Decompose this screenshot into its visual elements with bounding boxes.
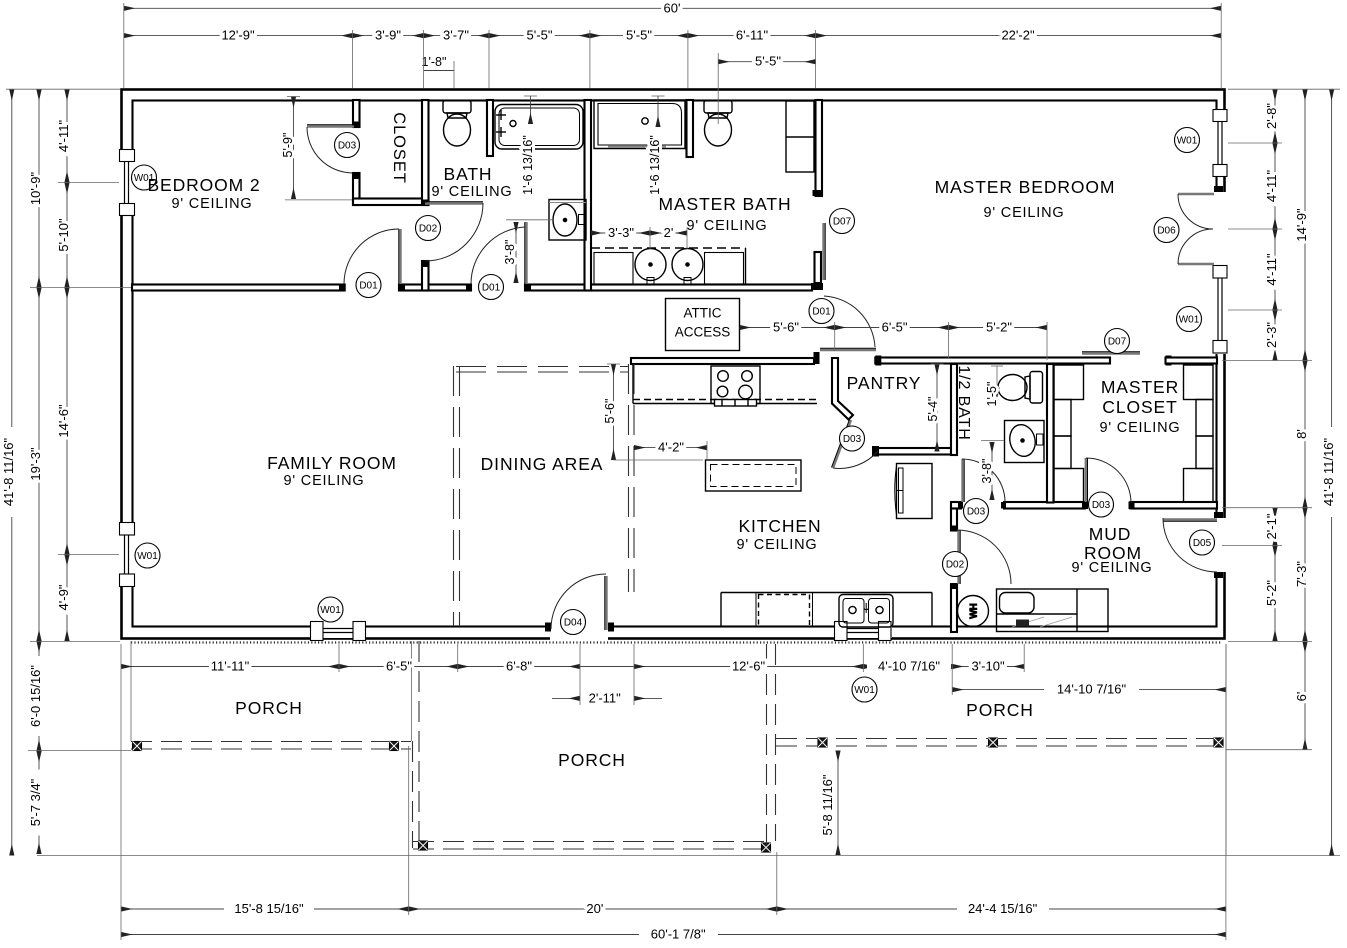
svg-text:20': 20' xyxy=(586,901,603,916)
svg-text:6'-11": 6'-11" xyxy=(736,28,769,43)
svg-text:1'-6 13/16": 1'-6 13/16" xyxy=(521,135,535,195)
svg-text:PANTRY: PANTRY xyxy=(847,373,922,393)
svg-text:2'-3": 2'-3" xyxy=(1264,322,1279,348)
svg-text:2'-11": 2'-11" xyxy=(589,690,622,705)
svg-text:W01: W01 xyxy=(320,605,341,616)
svg-text:4'-2": 4'-2" xyxy=(658,440,684,455)
svg-text:3'-8": 3'-8" xyxy=(503,240,517,265)
svg-text:CLOSET: CLOSET xyxy=(1102,397,1177,417)
svg-text:PORCH: PORCH xyxy=(235,698,303,718)
svg-text:DINING AREA: DINING AREA xyxy=(481,454,604,474)
svg-text:D06: D06 xyxy=(1157,226,1176,237)
svg-text:W01: W01 xyxy=(854,685,875,696)
svg-text:8': 8' xyxy=(1294,429,1309,439)
svg-text:14'-6": 14'-6" xyxy=(56,404,71,438)
svg-text:60'-1 7/8": 60'-1 7/8" xyxy=(651,927,706,942)
svg-text:9' CEILING: 9' CEILING xyxy=(172,196,253,212)
svg-text:PORCH: PORCH xyxy=(966,700,1034,720)
svg-text:W01: W01 xyxy=(137,551,158,562)
svg-text:14'-10 7/16": 14'-10 7/16" xyxy=(1057,682,1127,697)
svg-text:2'-1": 2'-1" xyxy=(1264,513,1279,539)
svg-text:4'-11": 4'-11" xyxy=(1264,253,1279,286)
svg-text:ATTIC: ATTIC xyxy=(684,306,722,321)
svg-text:14'-9": 14'-9" xyxy=(1294,208,1309,242)
svg-text:9' CEILING: 9' CEILING xyxy=(284,473,365,489)
svg-text:3'-7": 3'-7" xyxy=(443,28,469,43)
svg-text:D07: D07 xyxy=(1108,337,1127,348)
svg-text:19'-3": 19'-3" xyxy=(28,447,43,481)
svg-text:6'-0 15/16": 6'-0 15/16" xyxy=(28,665,43,727)
svg-text:5'-8 11/16": 5'-8 11/16" xyxy=(820,774,835,835)
svg-text:1/2 BATH: 1/2 BATH xyxy=(955,365,972,440)
svg-text:12'-6": 12'-6" xyxy=(732,659,766,674)
svg-text:1'-5": 1'-5" xyxy=(985,382,999,407)
svg-text:3'-10": 3'-10" xyxy=(971,659,1005,674)
svg-text:5'-9": 5'-9" xyxy=(281,133,295,158)
svg-text:22'-2": 22'-2" xyxy=(1001,28,1035,43)
svg-text:MASTER BATH: MASTER BATH xyxy=(658,194,791,214)
svg-text:KITCHEN: KITCHEN xyxy=(738,516,821,536)
svg-text:2': 2' xyxy=(664,225,674,240)
svg-text:2'-8": 2'-8" xyxy=(1264,103,1279,129)
svg-text:BATH: BATH xyxy=(444,164,493,184)
svg-text:3'-3": 3'-3" xyxy=(608,225,634,240)
svg-text:41'-8 11/16": 41'-8 11/16" xyxy=(1321,437,1336,506)
svg-text:D02: D02 xyxy=(419,224,438,235)
svg-text:11'-11": 11'-11" xyxy=(211,659,250,674)
svg-text:6'-8": 6'-8" xyxy=(506,659,532,674)
svg-text:W01: W01 xyxy=(1179,315,1200,326)
svg-text:12'-9": 12'-9" xyxy=(221,28,255,43)
svg-text:5'-2": 5'-2" xyxy=(1264,580,1279,606)
svg-text:5'-5": 5'-5" xyxy=(626,28,652,43)
svg-text:3'-9": 3'-9" xyxy=(375,28,401,43)
svg-text:4'-11": 4'-11" xyxy=(1264,170,1279,203)
svg-text:5'-7 3/4": 5'-7 3/4" xyxy=(28,778,43,826)
svg-text:D01: D01 xyxy=(482,283,501,294)
svg-text:9' CEILING: 9' CEILING xyxy=(737,537,818,553)
svg-text:D03: D03 xyxy=(967,507,986,518)
svg-text:1'-8": 1'-8" xyxy=(422,55,447,69)
svg-text:5'-10": 5'-10" xyxy=(56,218,71,252)
svg-text:9' CEILING: 9' CEILING xyxy=(432,184,513,200)
svg-text:60': 60' xyxy=(664,0,681,15)
svg-text:MUD: MUD xyxy=(1089,524,1132,544)
svg-text:WH: WH xyxy=(969,604,979,619)
svg-text:5'-2": 5'-2" xyxy=(986,320,1012,335)
svg-text:D07: D07 xyxy=(833,217,852,228)
svg-text:9' CEILING: 9' CEILING xyxy=(687,218,768,234)
svg-text:4'-9": 4'-9" xyxy=(56,584,71,610)
svg-text:15'-8 15/16": 15'-8 15/16" xyxy=(234,901,304,916)
svg-text:D05: D05 xyxy=(1193,538,1212,549)
svg-text:5'-5": 5'-5" xyxy=(527,28,553,43)
svg-text:D04: D04 xyxy=(564,618,583,629)
svg-text:7'-3": 7'-3" xyxy=(1294,561,1309,587)
svg-text:D01: D01 xyxy=(359,281,378,292)
svg-text:PORCH: PORCH xyxy=(558,750,626,770)
svg-text:9' CEILING: 9' CEILING xyxy=(1100,420,1181,436)
svg-text:5'-6": 5'-6" xyxy=(773,320,799,335)
svg-text:D01: D01 xyxy=(812,307,831,318)
svg-text:9' CEILING: 9' CEILING xyxy=(1072,560,1153,576)
svg-text:BEDROOM 2: BEDROOM 2 xyxy=(147,175,260,195)
svg-text:4'-10 7/16": 4'-10 7/16" xyxy=(878,659,940,674)
svg-text:6': 6' xyxy=(1294,692,1309,702)
svg-text:FAMILY ROOM: FAMILY ROOM xyxy=(267,453,397,473)
svg-text:3'-8": 3'-8" xyxy=(980,459,994,484)
svg-text:24'-4 15/16": 24'-4 15/16" xyxy=(968,901,1038,916)
svg-text:CLOSET: CLOSET xyxy=(390,112,408,183)
svg-text:6'-5": 6'-5" xyxy=(386,659,412,674)
svg-text:D03: D03 xyxy=(843,434,862,445)
svg-text:5'-5": 5'-5" xyxy=(755,54,781,69)
svg-text:MASTER: MASTER xyxy=(1101,377,1179,397)
svg-text:5'-4": 5'-4" xyxy=(926,397,940,422)
svg-text:D02: D02 xyxy=(946,560,965,571)
svg-text:ACCESS: ACCESS xyxy=(675,325,731,340)
svg-text:9' CEILING: 9' CEILING xyxy=(984,205,1065,221)
svg-text:D03: D03 xyxy=(1092,500,1111,511)
svg-text:MASTER BEDROOM: MASTER BEDROOM xyxy=(935,177,1116,197)
svg-text:D03: D03 xyxy=(338,141,357,152)
svg-text:5'-6": 5'-6" xyxy=(603,399,617,424)
svg-text:41'-8 11/16": 41'-8 11/16" xyxy=(1,437,16,506)
svg-text:W01: W01 xyxy=(1177,136,1198,147)
svg-text:6'-5": 6'-5" xyxy=(882,320,908,335)
svg-text:1'-6 13/16": 1'-6 13/16" xyxy=(648,135,662,195)
svg-text:10'-9": 10'-9" xyxy=(28,172,43,206)
svg-text:4'-11": 4'-11" xyxy=(56,120,71,153)
